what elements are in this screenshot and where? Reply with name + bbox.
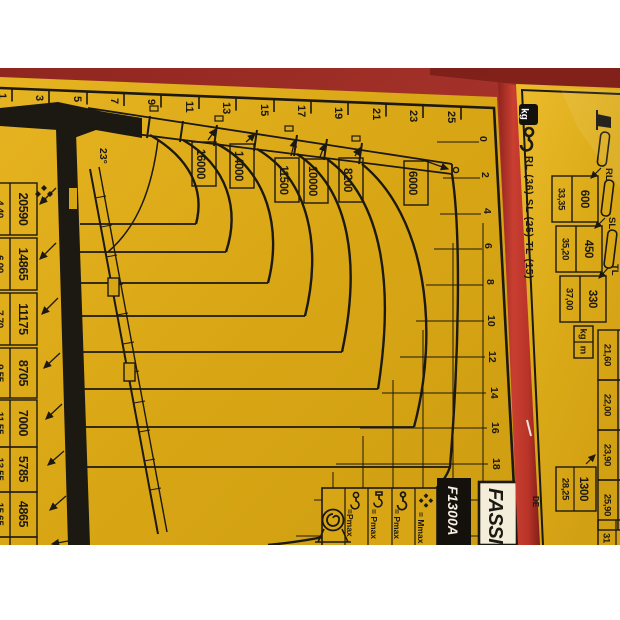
- curve-label: 14000: [232, 151, 244, 181]
- extra-m-value: 31: [601, 533, 612, 544]
- axis-label: 19: [332, 107, 344, 119]
- unit-label: m: [578, 346, 589, 354]
- legend-label: =Pmax: [345, 509, 355, 537]
- table-m-value: 13,55: [0, 457, 5, 481]
- axis-label: 5: [71, 96, 83, 102]
- unit-label: kg: [578, 328, 589, 339]
- axis-label: 2: [479, 172, 491, 178]
- legend: =Pmax = Pmax = Pmax = Mmax: [315, 488, 437, 545]
- jib-m-value: 33,35: [556, 188, 567, 211]
- axis-label: 18: [490, 458, 502, 470]
- model-label: F1300A: [445, 486, 460, 536]
- column-slot: [69, 188, 77, 209]
- jib-label: TL: [609, 264, 620, 276]
- table-load-value: 4865: [16, 501, 30, 528]
- axis-label: 8: [484, 279, 496, 285]
- table-load-value: 5785: [16, 456, 30, 483]
- axis-label: 16: [489, 422, 501, 434]
- clipped-m-value: 22,00: [602, 394, 613, 416]
- axis-label: 3: [33, 95, 45, 101]
- main-placard: 1 3 5 7 9 11 13 15 17 19 21 23 25 0 2 4 …: [0, 77, 521, 545]
- jib-label: SL: [606, 217, 617, 229]
- kg-badge-label: kg: [519, 108, 530, 120]
- jib-m-value: 37,00: [564, 288, 575, 310]
- axis-label: 15: [258, 104, 270, 116]
- legend-label: = Pmax: [369, 509, 379, 539]
- brand-label: FASSI: [484, 488, 506, 544]
- axis-label: 4: [481, 208, 493, 214]
- curve-label: 10000: [306, 166, 318, 196]
- axis-label: 17: [295, 105, 307, 117]
- curve-label: 16000: [194, 149, 206, 179]
- clipped-m-value: 25,90: [602, 494, 613, 516]
- jib-load-value: 450: [582, 240, 594, 258]
- axis-label: 11: [183, 101, 195, 113]
- axis-label: 7: [108, 98, 120, 104]
- table-m-value: 7,70: [0, 310, 5, 329]
- crane-load-chart: 1 3 5 7 9 11 13 15 17 19 21 23 25 0 2 4 …: [0, 68, 620, 545]
- page: 1 3 5 7 9 11 13 15 17 19 21 23 25 0 2 4 …: [0, 0, 620, 620]
- table-m-value: 9,55: [0, 364, 5, 383]
- axis-label: 0: [477, 136, 489, 142]
- legend-label: = Mmax: [416, 512, 426, 544]
- axis-label: 6: [482, 243, 494, 249]
- clipped-m-value: 23,90: [602, 444, 613, 466]
- table-m-value: 6,00: [0, 255, 5, 274]
- clipped-m-value: 21,60: [602, 344, 613, 366]
- angle-label: 23°: [97, 148, 109, 164]
- axis-label: 21: [370, 108, 382, 120]
- jib-load-value: 600: [578, 190, 590, 208]
- curve-label: 8200: [341, 168, 353, 192]
- model-badge: F1300A: [437, 478, 471, 545]
- jib-caption: RL (36) SL (25) TL (15): [523, 156, 534, 279]
- jib-load-value: 330: [586, 290, 598, 308]
- axis-label: 25: [445, 111, 457, 123]
- curve-label: 11500: [277, 165, 289, 194]
- axis-label: 9: [145, 99, 157, 105]
- chart-photo: 1 3 5 7 9 11 13 15 17 19 21 23 25 0 2 4 …: [0, 68, 620, 545]
- brand-logo: FASSI: [479, 482, 517, 545]
- table-load-value: 20590: [16, 193, 30, 226]
- axis-label: 1: [0, 93, 8, 99]
- table-m-value: 4,40: [0, 200, 5, 219]
- table-load-value: 14865: [16, 248, 30, 281]
- table-load-value: 8705: [16, 360, 30, 387]
- jib-m-value: 35,20: [560, 238, 571, 260]
- table-load-value: 7000: [16, 410, 30, 437]
- kg-badge: kg: [519, 104, 539, 125]
- axis-label: 12: [486, 351, 498, 363]
- table-load-value: 11175: [16, 303, 30, 335]
- legend-label: = Pmax: [392, 509, 402, 539]
- curve-label: 6000: [406, 171, 418, 195]
- table-m-value: 15,65: [0, 502, 5, 526]
- axis-label: 13: [220, 102, 232, 114]
- axis-label: 23: [407, 110, 419, 122]
- axis-label: 10: [485, 315, 497, 327]
- edge-text: DE: [531, 496, 540, 508]
- extra-load-value: 1300: [577, 477, 589, 501]
- table-m-value: 11,55: [0, 412, 5, 435]
- axis-label: 14: [488, 387, 500, 399]
- extra-m-value: 28,25: [560, 478, 571, 501]
